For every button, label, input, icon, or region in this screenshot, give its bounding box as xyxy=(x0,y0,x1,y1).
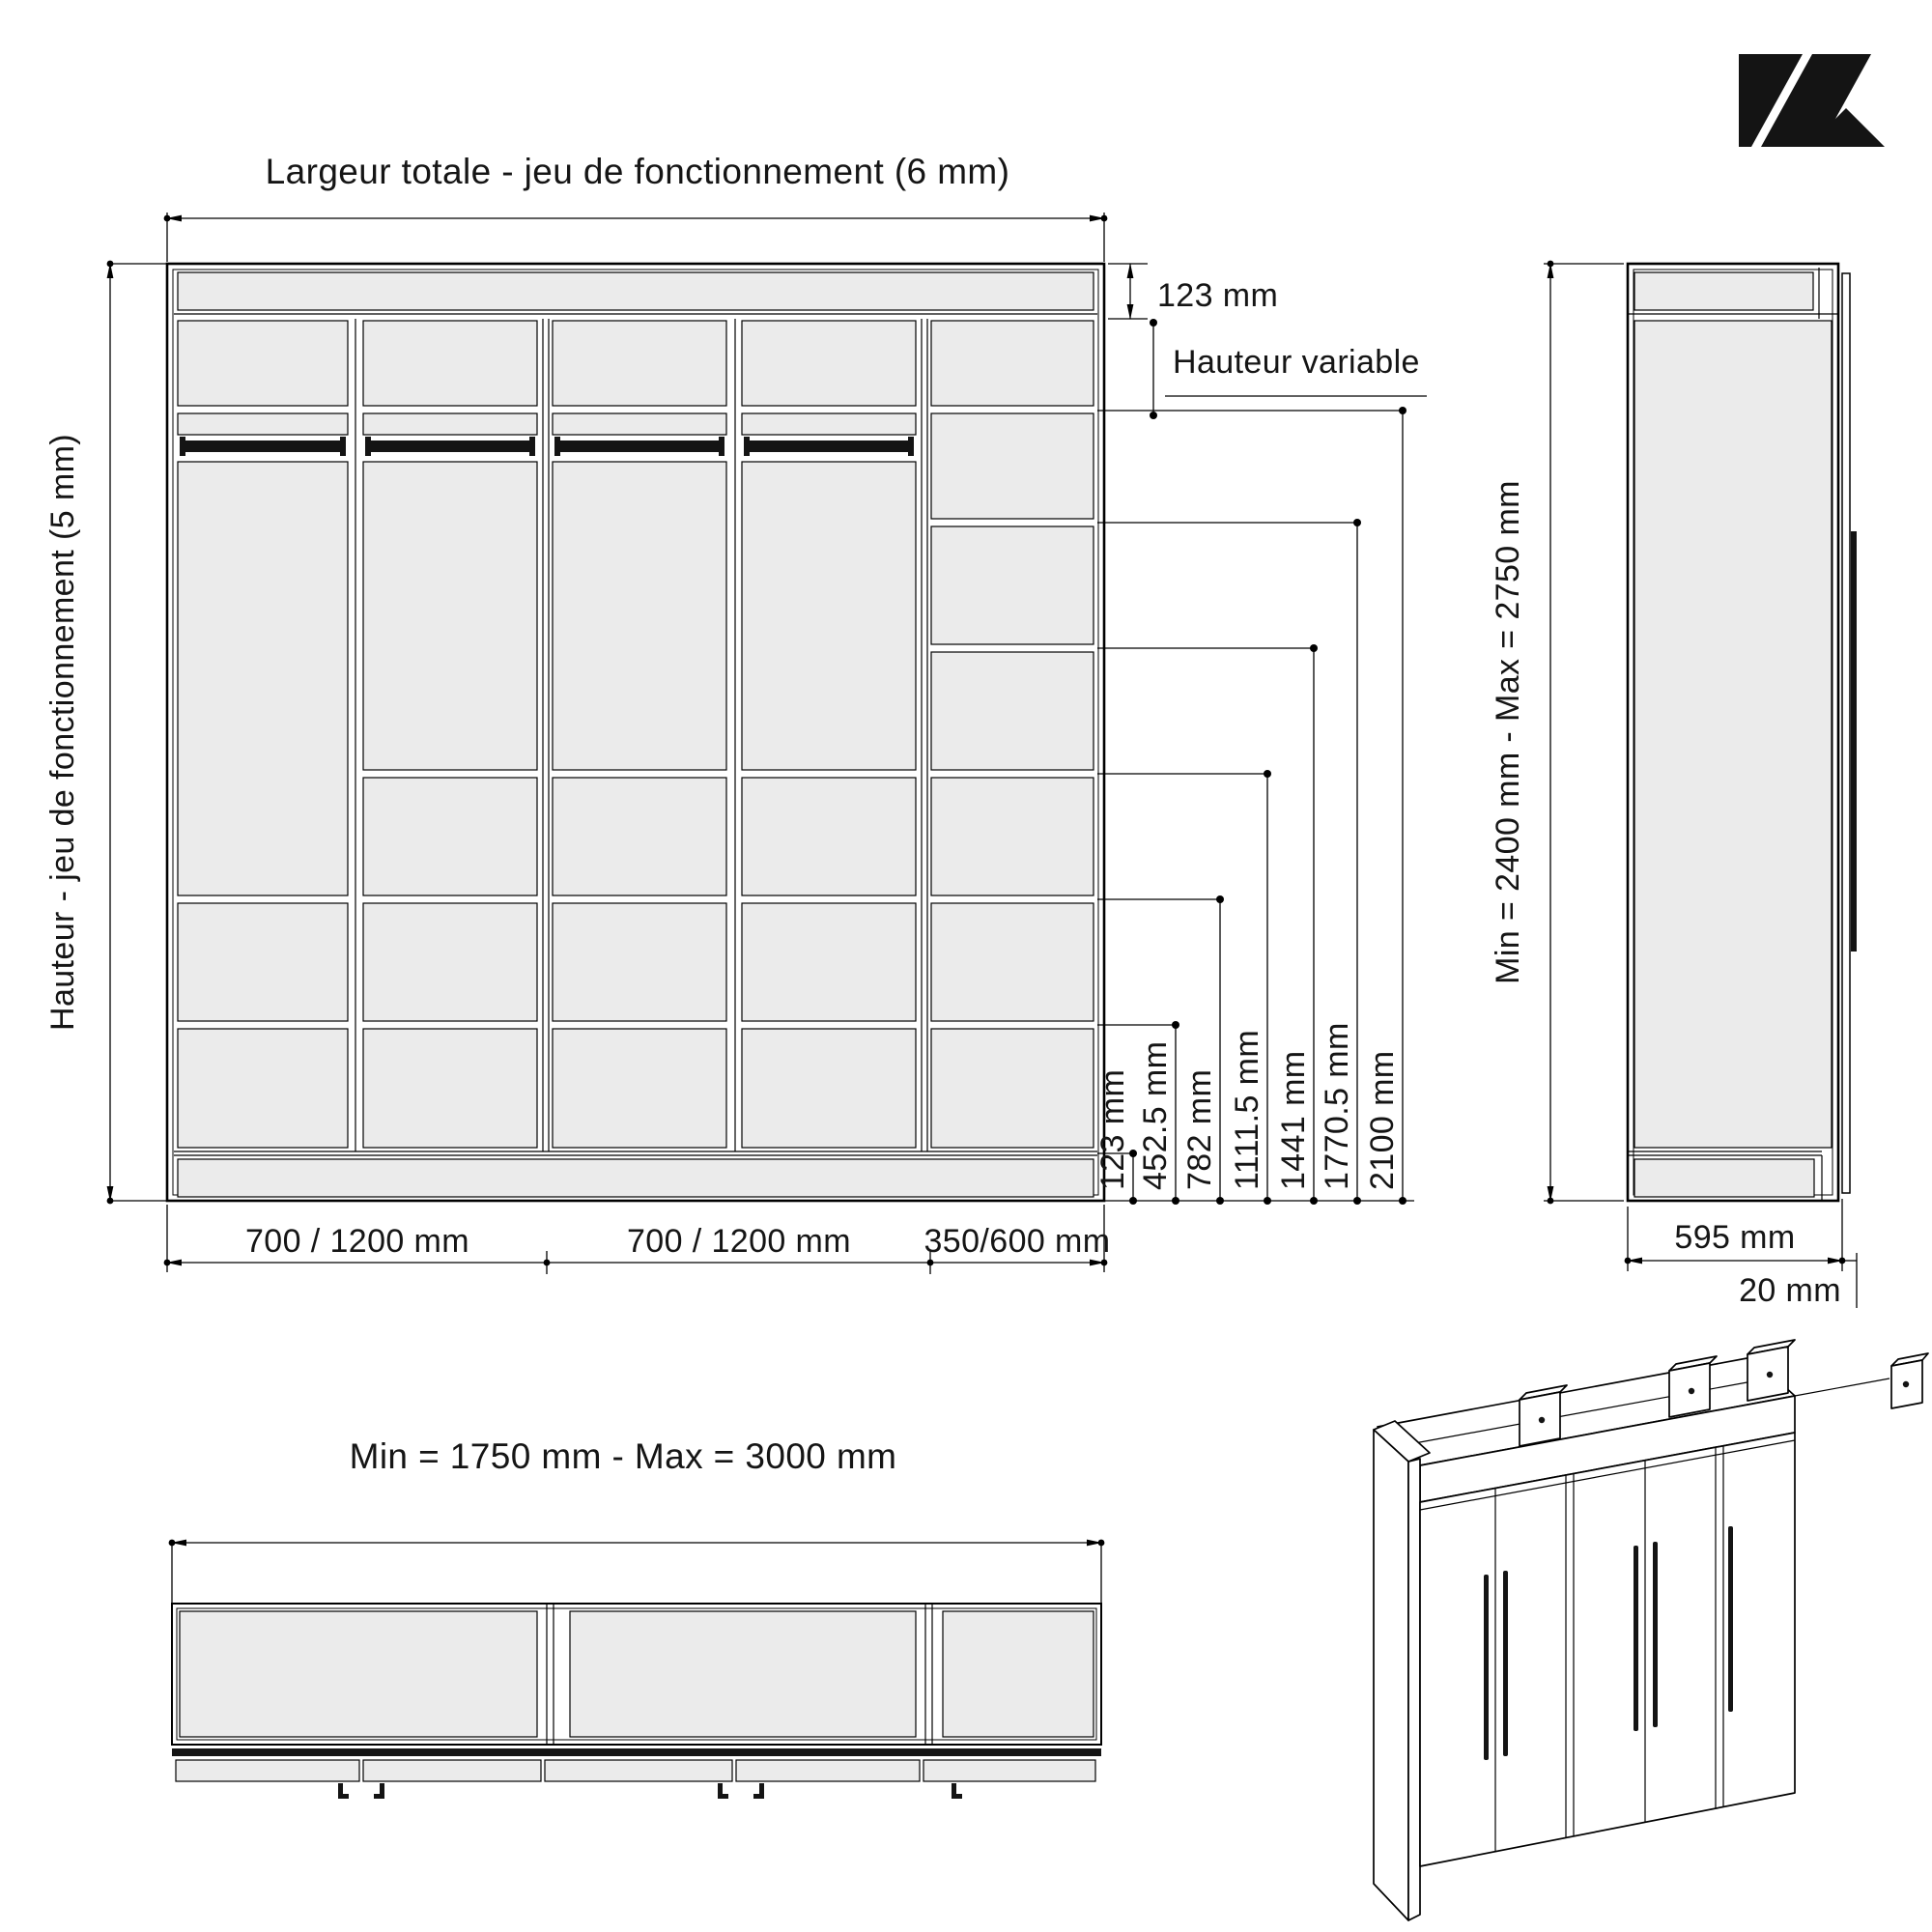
plan-door xyxy=(736,1760,920,1781)
wardrobe-3d-view xyxy=(1374,1340,1928,1920)
cell xyxy=(363,321,537,406)
cell xyxy=(178,903,348,1021)
variable-dim-label: Hauteur variable xyxy=(1173,344,1420,381)
3d-door-handle xyxy=(1728,1526,1733,1712)
closet-rod-bar xyxy=(185,440,340,452)
cell xyxy=(553,413,726,435)
bottom-dim-label-2: 350/600 mm xyxy=(924,1223,1111,1260)
cell xyxy=(742,1029,916,1148)
side-thickness-label: 20 mm xyxy=(1739,1272,1841,1309)
3d-doors-face xyxy=(1420,1433,1795,1866)
3d-cam-dot xyxy=(1539,1417,1545,1423)
3d-door-handle xyxy=(1484,1575,1489,1760)
front-left-dim-label: Hauteur - jeu de fonctionnement (5 mm) xyxy=(44,434,81,1031)
side-depth-label: 595 mm xyxy=(1674,1219,1795,1256)
3d-cam-dot xyxy=(1767,1372,1773,1378)
3d-door-handle xyxy=(1653,1542,1658,1727)
closet-rod-bar xyxy=(371,440,529,452)
bottom-dim-label-0: 700 / 1200 mm xyxy=(245,1223,469,1260)
cell xyxy=(931,778,1094,895)
technical-drawing-page: Largeur totale - jeu de fonctionnement (… xyxy=(0,0,1932,1932)
cell xyxy=(570,1611,916,1737)
3d-door-handle xyxy=(1634,1546,1638,1731)
front-top-band xyxy=(178,272,1094,310)
plan-front-rail xyxy=(172,1748,1101,1756)
side-top-band xyxy=(1634,272,1813,310)
closet-rod-bar xyxy=(560,440,719,452)
plan-view: Min = 1750 mm - Max = 3000 mm xyxy=(169,1436,1105,1799)
cell xyxy=(553,903,726,1021)
cell xyxy=(363,462,537,770)
cell xyxy=(363,778,537,895)
brand-logo xyxy=(1739,54,1885,147)
cell xyxy=(742,903,916,1021)
closet-rod-bar xyxy=(750,440,908,452)
side-plinth xyxy=(1634,1159,1814,1197)
wardrobe-dimensions-diagram: Largeur totale - jeu de fonctionnement (… xyxy=(0,0,1932,1932)
front-title: Largeur totale - jeu de fonctionnement (… xyxy=(266,152,1010,191)
side-body-panel xyxy=(1634,321,1832,1148)
plan-door xyxy=(923,1760,1095,1781)
top-band-dim-label: 123 mm xyxy=(1157,277,1278,314)
hinge-icon xyxy=(952,1783,962,1799)
plan-door xyxy=(176,1760,359,1781)
cell xyxy=(178,1029,348,1148)
cell xyxy=(363,413,537,435)
cell xyxy=(553,462,726,770)
right-dim-label-4: 1441 mm xyxy=(1275,1050,1312,1190)
3d-cam-dot xyxy=(1903,1381,1909,1387)
3d-left-panel xyxy=(1374,1430,1408,1920)
right-dim-label-2: 782 mm xyxy=(1181,1069,1218,1190)
right-dim-label-5: 1770.5 mm xyxy=(1319,1022,1355,1190)
cell xyxy=(931,652,1094,770)
plan-width-label: Min = 1750 mm - Max = 3000 mm xyxy=(350,1436,897,1476)
hinge-icon xyxy=(753,1783,764,1799)
3d-door-handle xyxy=(1503,1571,1508,1756)
plan-door xyxy=(363,1760,541,1781)
cell xyxy=(931,903,1094,1021)
cell xyxy=(931,526,1094,644)
front-view xyxy=(167,264,1104,1201)
cell xyxy=(742,413,916,435)
cell xyxy=(178,462,348,895)
plan-door xyxy=(545,1760,732,1781)
hinge-icon xyxy=(374,1783,384,1799)
side-height-label: Min = 2400 mm - Max = 2750 mm xyxy=(1490,480,1526,984)
cell xyxy=(553,1029,726,1148)
right-dim-label-1: 452.5 mm xyxy=(1137,1041,1174,1190)
cell xyxy=(742,321,916,406)
cell xyxy=(180,1611,537,1737)
cell xyxy=(363,1029,537,1148)
hinge-icon xyxy=(338,1783,349,1799)
cell xyxy=(363,903,537,1021)
3d-left-panel-edge xyxy=(1408,1459,1420,1920)
right-dim-label-6: 2100 mm xyxy=(1364,1050,1401,1190)
cell xyxy=(943,1611,1094,1737)
plinth xyxy=(178,1159,1094,1197)
3d-cam-dot xyxy=(1689,1388,1694,1394)
cell xyxy=(553,778,726,895)
bottom-dim-label-1: 700 / 1200 mm xyxy=(627,1223,851,1260)
cell xyxy=(931,1029,1094,1148)
3d-back-rail-line xyxy=(1795,1378,1889,1396)
side-door-panel xyxy=(1842,273,1850,1193)
cell xyxy=(553,321,726,406)
hinge-icon xyxy=(718,1783,728,1799)
cell xyxy=(742,462,916,770)
side-door-handle xyxy=(1851,531,1857,952)
cell xyxy=(931,413,1094,519)
side-view: Min = 2400 mm - Max = 2750 mm 595 mm 20 … xyxy=(1490,261,1857,1309)
cell xyxy=(931,321,1094,406)
right-dim-label-3: 1111.5 mm xyxy=(1229,1030,1265,1190)
cell xyxy=(178,413,348,435)
right-dim-label-0: 123 mm xyxy=(1094,1069,1131,1190)
cell xyxy=(178,321,348,406)
cell xyxy=(742,778,916,895)
